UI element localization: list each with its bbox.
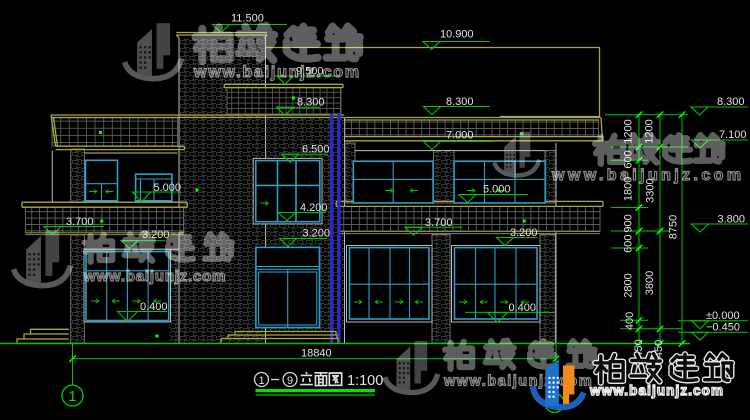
svg-text:7.100: 7.100: [719, 129, 747, 141]
svg-text:www.baijunjz.com: www.baijunjz.com: [83, 268, 226, 285]
svg-text:1: 1: [258, 375, 264, 387]
svg-text:1: 1: [68, 388, 76, 405]
svg-text:3.700: 3.700: [425, 217, 453, 229]
svg-text:600: 600: [623, 235, 635, 253]
svg-text:900: 900: [623, 214, 635, 232]
svg-text:0.400: 0.400: [140, 301, 168, 313]
svg-text:3.800: 3.800: [718, 213, 746, 225]
svg-text:8.300: 8.300: [717, 96, 745, 108]
svg-text:2800: 2800: [623, 273, 635, 297]
svg-text:4.200: 4.200: [300, 202, 328, 214]
svg-text:3.700: 3.700: [66, 216, 94, 228]
svg-text:6.500: 6.500: [302, 144, 330, 156]
svg-text:3.200: 3.200: [510, 227, 538, 239]
svg-text:3800: 3800: [644, 271, 656, 295]
svg-text:5.000: 5.000: [483, 184, 511, 196]
svg-text:7.000: 7.000: [446, 130, 474, 142]
svg-text:8.300: 8.300: [297, 97, 325, 109]
svg-text:5.000: 5.000: [154, 182, 182, 194]
svg-text:0.400: 0.400: [509, 302, 537, 314]
svg-text:−0.450: −0.450: [706, 322, 740, 334]
svg-text:11.500: 11.500: [231, 13, 264, 25]
svg-text:±0.000: ±0.000: [706, 310, 740, 322]
svg-text:400: 400: [624, 312, 636, 330]
svg-text:18840: 18840: [301, 347, 332, 359]
svg-text:www.baijunjz.com: www.baijunjz.com: [193, 64, 361, 81]
svg-text:8750: 8750: [667, 215, 679, 239]
svg-text:10.900: 10.900: [440, 29, 474, 41]
svg-text:9: 9: [287, 375, 293, 387]
svg-text:www.baijunjz.com: www.baijunjz.com: [589, 383, 724, 398]
svg-text:1:100: 1:100: [347, 373, 383, 389]
svg-text:www.baijunjz.com: www.baijunjz.com: [551, 167, 745, 184]
svg-text:8.300: 8.300: [446, 96, 474, 108]
svg-text:3.200: 3.200: [303, 228, 331, 240]
